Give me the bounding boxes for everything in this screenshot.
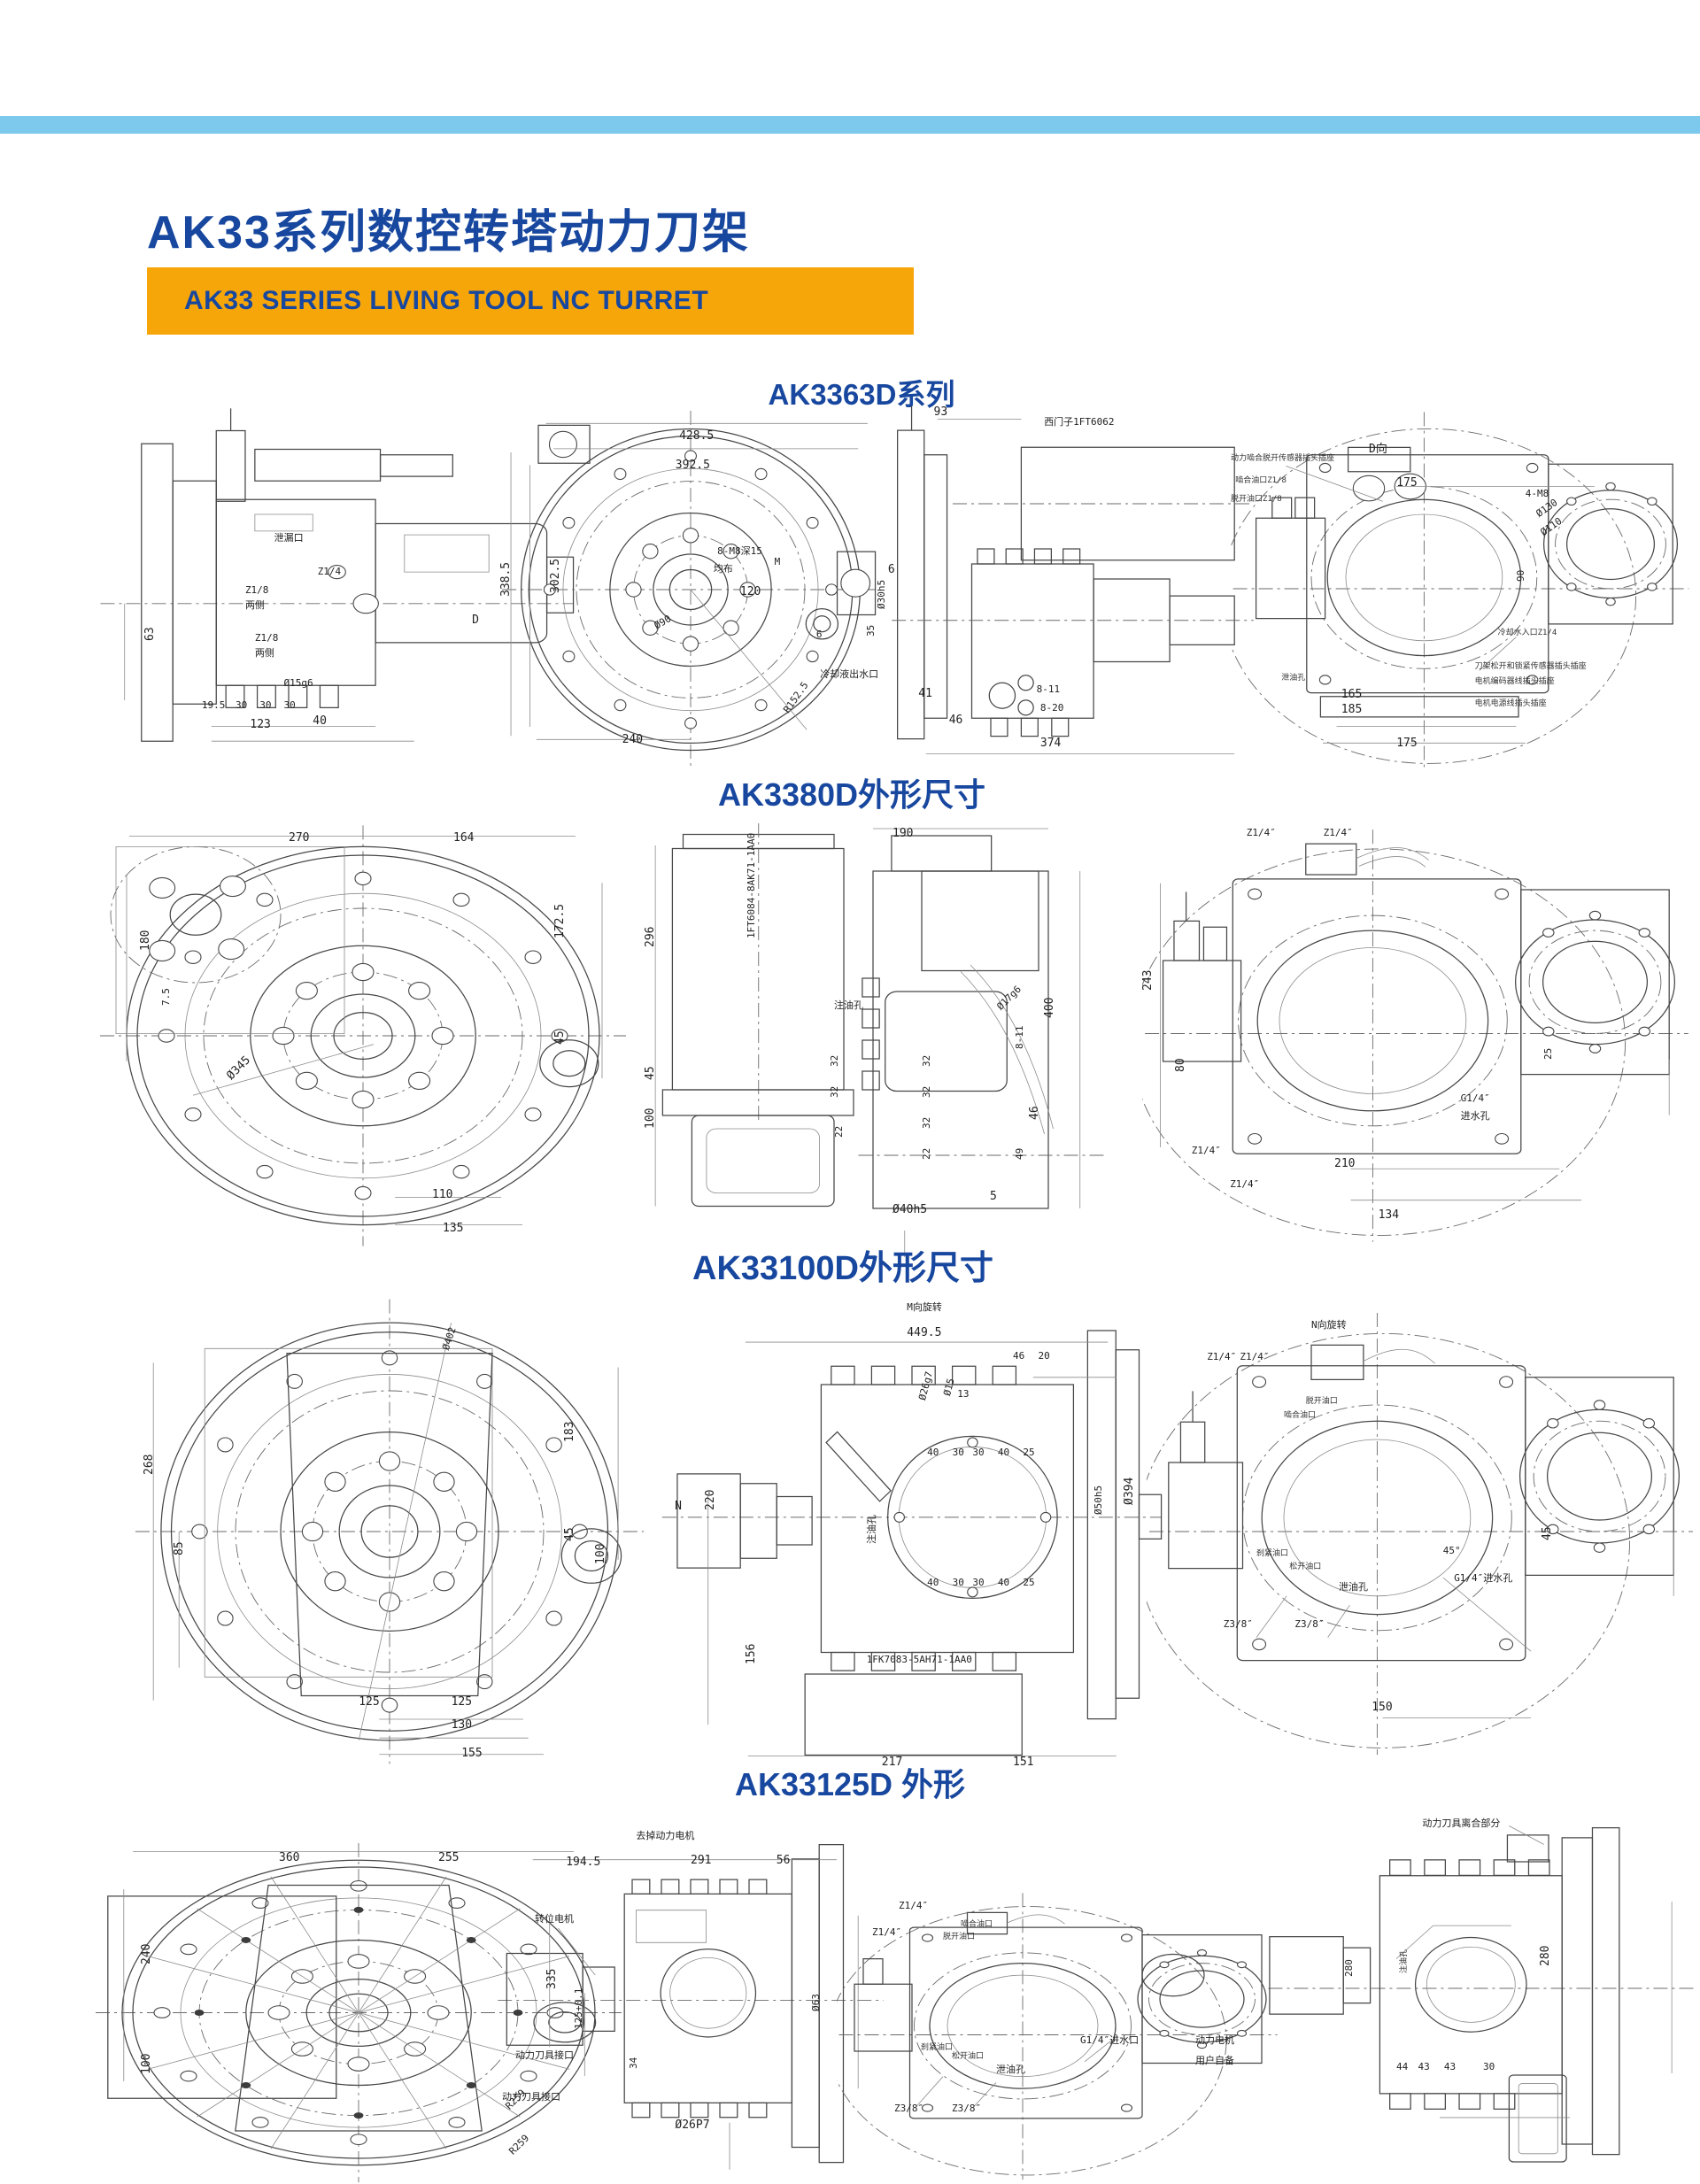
dim-label: 40 [998,1447,1009,1457]
series-banner-label: AK33 SERIES LIVING TOOL NC TURRET [147,286,708,316]
dim-label: 155 [461,1748,482,1759]
dim-label: 泄油孔 [996,2064,1025,2074]
dim-label: 25 [1543,1047,1553,1059]
drawing-ak33100d-rear-view: N向旋转Z1/4″Z1/4″脱开油口啮合油口45°45G1/4″进水孔刹紧油口松… [1147,1301,1696,1762]
dim-label: 啮合油口 [961,1921,993,1929]
dim-label: 296 [645,927,656,947]
dim-label: 46 [1029,1106,1040,1120]
dim-label: 123 [250,719,270,730]
drawing-ak3363d-motor-side-view: 93西门子1FT60626Ø30h541468-118-20374 [877,398,1257,775]
dim-label: 100 [645,1108,656,1129]
dim-label: 泄漏口 [274,533,304,543]
dim-label: 183 [564,1422,576,1442]
dim-label: G1/4″进水口 [1080,2035,1139,2045]
dim-label: 134 [1379,1209,1399,1221]
top-accent-bar [0,116,1700,134]
dim-label: 8-11 [1015,1026,1024,1050]
dim-label: 40 [927,1447,939,1457]
dim-label: 25 [1023,1447,1034,1457]
dim-label: 280 [1344,1960,1354,1978]
dim-label: 280 [1540,1945,1551,1965]
dim-label: 180 [140,930,151,951]
dim-label: 40 [927,1578,939,1587]
dim-label: 43 [1444,2062,1456,2072]
dim-label: Ø63 [811,1994,821,2011]
dim-label: 30 [953,1578,964,1587]
dim-label: Z3/8″ [952,2103,981,2113]
dim-label: 8-M8深15 [717,546,762,556]
drawing-ak3363d-front-face-view: 428.5392.5338.5302.58-M8深15均布M120Ø90635冷… [500,409,881,770]
dim-label: 360 [279,1852,299,1864]
dim-label: 40 [998,1578,1009,1587]
engineering-drawing-art [877,398,1257,775]
dim-label: 172.5 [554,903,566,938]
drawing-ak33100d-front-view: 26885Ø40218345100125125130155 [133,1297,646,1766]
dim-label: 45 [564,1527,576,1541]
dim-label: 100 [141,2054,152,2074]
dim-label: 93 [934,406,948,418]
dim-label: 动力电机 [1195,2035,1234,2045]
dim-label: 240 [141,1944,152,1964]
dim-label: 去掉动力电机 [636,1831,694,1841]
dim-label: 210 [1334,1158,1355,1169]
dim-label: 泄油孔 [1281,675,1305,683]
dim-label: G1/4″进水孔 [1454,1573,1512,1583]
dim-label: Z1/4″ [872,1927,901,1937]
dim-label: 4-M8 [1526,489,1549,498]
dim-label: 刀架松开和锁紧传感器插头插座 [1475,663,1587,671]
dim-label: M向旋转 [907,1302,942,1312]
dim-label: 400 [1044,998,1055,1018]
dim-label: 注油孔 [834,1000,863,1010]
dim-label: 松开油口 [1289,1563,1321,1571]
dim-label: 125 [359,1696,379,1708]
dim-label: Ø394 [1124,1478,1135,1505]
dim-label: 46 [949,714,963,726]
section-heading-ak33100d: AK33100D外形尺寸 [692,1240,993,1289]
dim-label: 脱开油口 [1306,1398,1338,1406]
dim-label: 6 [888,564,895,575]
engineering-drawing-art [620,819,1107,1262]
dim-label: M [775,557,781,567]
engineering-drawing-art [1266,1815,1700,2184]
dim-label: 两侧 [255,648,274,658]
dim-label: N向旋转 [1311,1320,1347,1330]
dim-label: 46 [1013,1351,1024,1361]
dim-label: 32 [922,1055,931,1067]
dim-label: Z1/4″ [1247,828,1276,837]
dim-label: 428.5 [679,430,714,442]
dim-label: Z3/8″ [1294,1619,1324,1629]
dim-label: 啮合油口Z1/8 [1235,477,1287,485]
dim-label: Z1/4″ [1230,1179,1259,1189]
dim-label: Z1/8 [245,585,269,595]
drawing-ak33125d-side-view-no-motor: 去掉动力电机194.529156转位电机335125+0.134动力刀具接口Ø2… [496,1824,885,2184]
dim-label: 动力刀具接口 [515,2050,574,2060]
dim-label: Ø26P7 [675,2119,709,2131]
dim-label: 291 [691,1855,711,1866]
dim-label: 5 [990,1191,997,1202]
dim-label: 392.5 [676,459,710,471]
dim-label: 45 [554,1030,566,1045]
dim-label: 刹紧油口 [1256,1550,1288,1558]
dim-label: 220 [705,1489,716,1509]
dim-label: 338.5 [500,562,512,597]
dim-label: 30 [259,700,271,710]
dim-label: 80 [1175,1058,1186,1072]
page-title: AK33系列数控转塔动力刀架 [147,195,750,261]
dim-label: 32 [830,1055,839,1067]
series-banner: AK33 SERIES LIVING TOOL NC TURRET [147,267,914,335]
dim-label: 6 [816,629,823,639]
dim-label: 电机电源线插头插座 [1475,700,1547,708]
dim-label: 41 [918,688,932,699]
dim-label: 268 [143,1455,155,1475]
dim-label: 45° [1443,1546,1461,1555]
dim-label: 泄油孔 [1339,1582,1368,1592]
dim-label: Z1/4″ [1207,1352,1236,1362]
dim-label: 63 [144,627,156,641]
dim-label: 240 [622,734,643,745]
dim-label: 两侧 [245,600,265,610]
drawing-ak3380d-front-view: 2701641807.5172.545Ø345110135 [97,823,629,1248]
dim-label: 130 [452,1719,472,1731]
dim-label: 156 [746,1644,757,1664]
dim-label: 动力啮合脱开传感器插头插座 [1231,455,1334,463]
dim-label: Z1/4″ [1240,1352,1269,1362]
dim-label: 125 [452,1696,472,1708]
dim-label: 49 [1015,1148,1024,1160]
dim-label: 均布 [714,564,733,574]
dim-label: 151 [1013,1756,1033,1768]
dim-label: 20 [1039,1351,1050,1361]
dim-label: 45 [645,1066,656,1080]
dim-label: Z1/4″ [1324,828,1353,837]
dim-label: 30 [1483,2062,1495,2072]
dim-label: 脱开油口Z1/8 [1231,496,1282,504]
dim-label: G1/4″ [1461,1093,1490,1103]
dim-label: 电机编码器线插头插座 [1475,678,1555,686]
dim-label: Ø50h5 [1093,1486,1103,1515]
dim-label: 185 [1341,704,1362,715]
dim-label: Ø15g6 [284,678,313,688]
dim-label: 注油孔 [1401,1949,1409,1973]
dim-label: 44 [1396,2062,1408,2072]
dim-label: 34 [629,2057,638,2069]
dim-label: 35 [866,625,876,637]
dim-label: 32 [922,1086,931,1098]
dim-label: 22 [834,1126,844,1138]
engineering-drawing-art [1142,819,1691,1248]
dim-label: 32 [830,1086,839,1098]
dim-label: 125+0.1 [574,1988,583,2029]
dim-label: 19.5 [202,700,226,710]
dim-label: 135 [443,1223,463,1234]
dim-label: D [472,614,479,626]
dim-label: 120 [740,586,761,598]
dim-label: 22 [922,1148,931,1160]
drawing-ak33125d-right-side-view: 动力刀具离合部分280280注油孔44434330 [1266,1815,1700,2184]
dim-label: 150 [1372,1702,1392,1713]
dim-label: 335 [546,1969,558,1989]
dim-label: 374 [1040,737,1061,749]
engineering-drawing-art [660,1288,1164,1771]
dim-label: 冷却水入口Z1/4 [1498,629,1557,637]
drawing-ak3380d-side-view: 1902961FT6084-8AK71-1AA0注油孔45100400Ø17g6… [620,819,1107,1262]
dim-label: N [675,1501,682,1512]
section-heading-ak33125d: AK33125D 外形 [735,1759,965,1805]
engineering-drawing-art [97,823,629,1248]
dim-label: 啮合油口 [1284,1412,1316,1420]
dim-label: 30 [953,1447,964,1457]
dim-label: 270 [289,832,309,844]
catalog-page: AK33系列数控转塔动力刀架 AK33 SERIES LIVING TOOL N… [0,0,1700,2184]
dim-label: Ø40h5 [892,1204,927,1215]
dim-label: Z1/4 [318,567,342,576]
dim-label: 动力刀具离合部分 [1422,1818,1500,1828]
dim-label: 脱开油口 [943,1933,975,1941]
dim-label: 45 [1542,1527,1553,1541]
engineering-drawing-art [1147,1301,1696,1762]
dim-label: 449.5 [907,1327,941,1339]
dim-label: 190 [892,828,913,839]
dim-label: 13 [957,1389,969,1399]
dim-label: 8-11 [1037,684,1061,694]
dim-label: 32 [922,1117,931,1129]
dim-label: 43 [1418,2062,1430,2072]
drawing-ak33125d-rear-view: Z1/4″Z1/4″啮合油口脱开油口G1/4″进水口刹紧油口松开油口泄油孔Z3/… [837,1886,1279,2184]
dim-label: D向 [1369,444,1387,455]
dim-label: 243 [1142,970,1154,991]
dim-label: 165 [1341,689,1362,700]
dim-label: 30 [236,700,247,710]
dim-label: Z1/8 [255,633,279,643]
dim-label: 用户自备 [1195,2056,1234,2065]
dim-label: Z1/4″ [899,1901,928,1910]
dim-label: 100 [595,1544,607,1564]
dim-label: 30 [972,1447,984,1457]
drawing-ak33100d-side-section-view: M向旋转449.54620Ø26g7Ø15134030304025N220注油孔… [660,1288,1164,1771]
drawing-ak3363d-rear-d-view: D向动力啮合脱开传感器插头插座啮合油口Z1/8脱开油口Z1/81754-M8Ø1… [1231,403,1691,775]
dim-label: Ø30h5 [877,580,886,609]
dim-label: 注油孔 [867,1515,877,1544]
dim-label: 255 [438,1852,459,1864]
dim-label: 1FT6084-8AK71-1AA0 [746,833,756,938]
dim-label: 164 [453,832,474,844]
dim-label: 西门子1FT6062 [1044,417,1114,427]
dim-label: 175 [1396,477,1417,489]
dim-label: 56 [777,1855,791,1866]
dim-label: 进水孔 [1461,1111,1490,1121]
dim-label: 302.5 [550,559,561,593]
dim-label: Z3/8″ [1224,1619,1253,1629]
drawing-ak3380d-rear-view: Z1/4″Z1/4″2438025G1/4″进水孔Z1/4″Z1/4″21013… [1142,819,1691,1248]
dim-label: 松开油口 [952,2053,984,2061]
dim-label: Z1/4″ [1192,1146,1221,1155]
dim-label: 30 [972,1578,984,1587]
dim-label: 40 [313,715,327,727]
dim-label: 冷却液出水口 [820,669,878,679]
dim-label: 25 [1023,1578,1034,1587]
dim-label: 8-20 [1040,703,1064,713]
section-heading-ak3380d: AK3380D外形尺寸 [718,769,985,815]
dim-label: 90 [1516,569,1526,581]
dim-label: 30 [284,700,296,710]
dim-label: 1FK7083-5AH71-1AA0 [867,1655,972,1664]
dim-label: 7.5 [161,989,171,1007]
dim-label: 194.5 [566,1856,600,1868]
dim-label: 85 [174,1541,185,1555]
dim-label: Z3/8″ [894,2103,923,2113]
dim-label: 转位电机 [535,1914,574,1924]
dim-label: 110 [432,1189,452,1200]
dim-label: 刹紧油口 [921,2044,953,2052]
dim-label: 175 [1396,737,1417,749]
